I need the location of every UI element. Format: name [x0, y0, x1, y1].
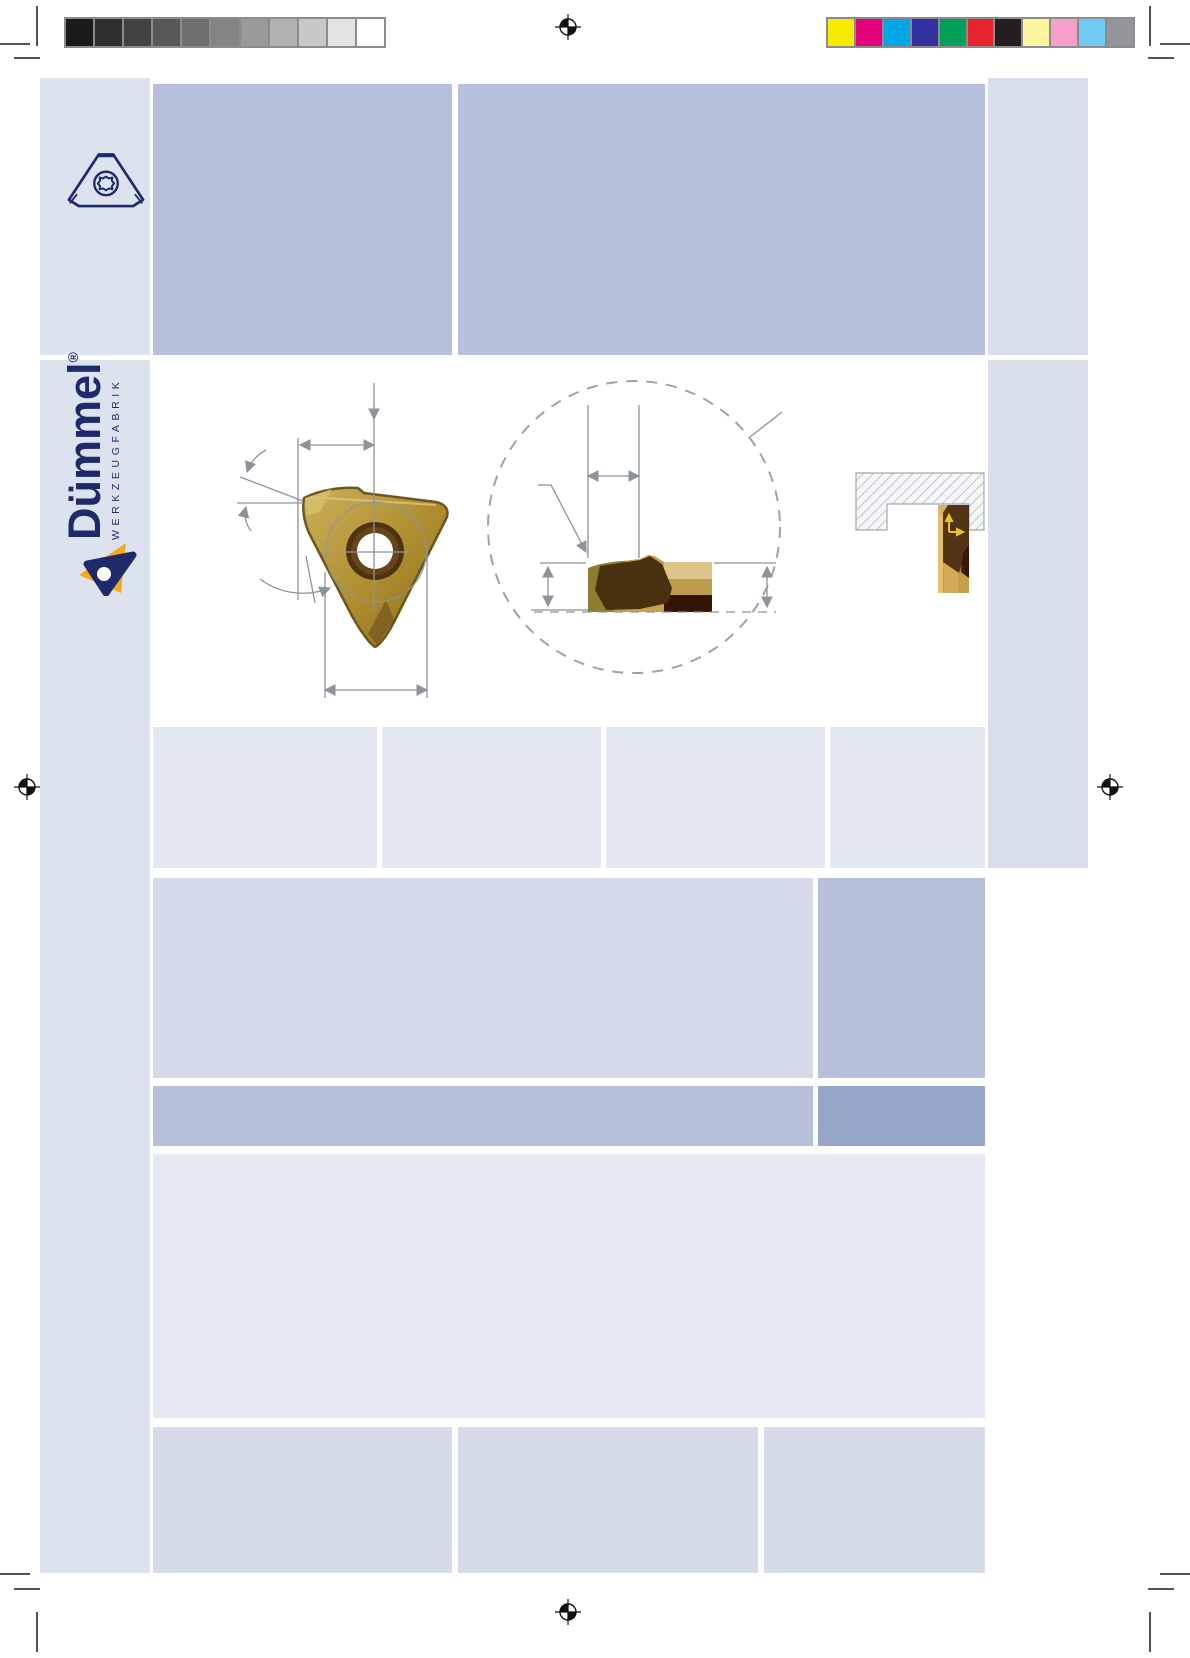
spec-placeholder-1: [153, 727, 377, 868]
brand-logo-mark: [76, 540, 138, 596]
brand-subtitle: WERKZEUGFABRIK: [110, 322, 122, 540]
sidebar-right-header: [988, 78, 1088, 355]
color-swatch: [995, 19, 1021, 46]
catalog-page: Dümmel® WERKZEUGFABRIK: [0, 0, 1190, 1658]
color-swatch: [856, 19, 882, 46]
table-body-placeholder: [153, 1154, 985, 1418]
color-swatch: [968, 19, 994, 46]
footer-block-1: [153, 1427, 452, 1573]
color-swatch: [357, 19, 384, 46]
color-swatch: [299, 19, 326, 46]
color-swatch: [1107, 19, 1133, 46]
color-swatch: [884, 19, 910, 46]
color-swatch: [1079, 19, 1105, 46]
color-swatch: [182, 19, 209, 46]
footer-block-2: [458, 1427, 758, 1573]
registration-mark-right: [1097, 774, 1123, 800]
header-block-right: [458, 84, 985, 355]
detail-leader-line: [750, 412, 782, 437]
color-swatch: [1051, 19, 1077, 46]
color-swatch: [124, 19, 151, 46]
color-swatch: [270, 19, 297, 46]
brand-logo: Dümmel® WERKZEUGFABRIK: [62, 322, 122, 540]
insert-top-view-drawing: [210, 375, 470, 705]
spec-placeholder-2: [382, 727, 601, 868]
color-swatch: [828, 19, 854, 46]
spec-placeholder-3: [606, 727, 825, 868]
color-swatch: [95, 19, 122, 46]
spec-placeholder-4: [830, 727, 985, 868]
color-swatch: [940, 19, 966, 46]
table-header-band-right: [818, 1086, 985, 1146]
grooving-insert-tool: [938, 505, 969, 593]
brand-wordmark: Dümmel®: [62, 322, 107, 540]
color-swatch: [241, 19, 268, 46]
color-calibration-bar: [826, 17, 1135, 48]
registration-mark-bottom: [555, 1599, 581, 1625]
registered-trademark-symbol: ®: [65, 352, 81, 362]
color-swatch: [66, 19, 93, 46]
grooving-application-drawing: [840, 460, 990, 600]
cutting-edge-profile-photo: [588, 555, 712, 612]
registration-mark-top: [555, 14, 581, 40]
header-block-left: [153, 84, 452, 355]
table-intro-left: [153, 878, 813, 1078]
color-swatch: [153, 19, 180, 46]
triangle-insert-icon: [62, 140, 150, 216]
registration-mark-left: [14, 774, 40, 800]
sidebar-left-header: [40, 78, 150, 355]
footer-block-3: [764, 1427, 985, 1573]
table-header-band-left: [153, 1086, 813, 1146]
color-swatch: [211, 19, 238, 46]
table-intro-right: [818, 878, 985, 1078]
color-swatch: [912, 19, 938, 46]
color-swatch: [1023, 19, 1049, 46]
grayscale-calibration-bar: [64, 17, 386, 48]
color-swatch: [328, 19, 355, 46]
detail-circle: [488, 381, 780, 673]
sidebar-right-main: [988, 360, 1088, 868]
insert-profile-detail-drawing: [470, 380, 800, 680]
brand-name: Dümmel: [59, 362, 110, 540]
